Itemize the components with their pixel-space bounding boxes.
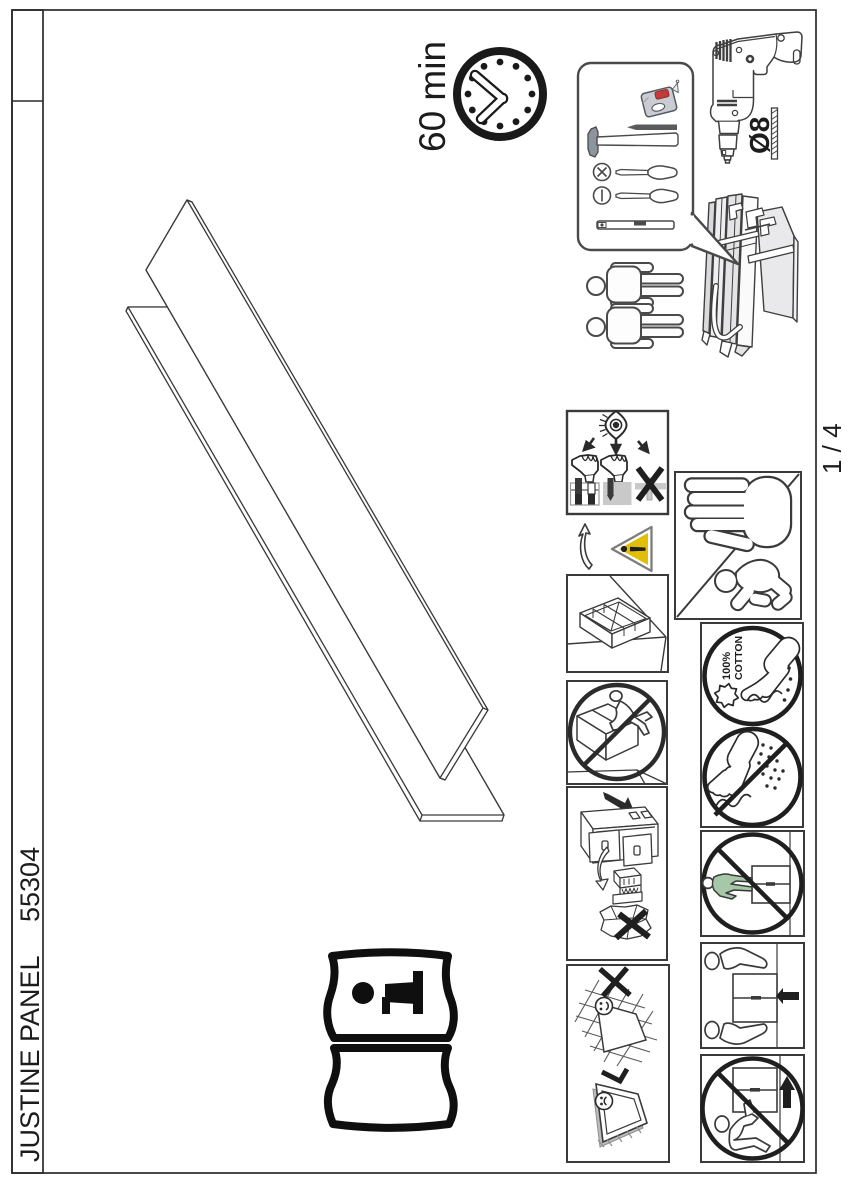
svg-text:JUSTINE PANEL: JUSTINE PANEL xyxy=(15,955,45,1162)
svg-text:Ø8: Ø8 xyxy=(744,117,775,154)
svg-text:55304: 55304 xyxy=(15,847,45,922)
svg-text:100%: 100% xyxy=(721,652,733,680)
svg-text:COTTON: COTTON xyxy=(733,636,745,680)
svg-text:1 / 4: 1 / 4 xyxy=(817,423,847,474)
svg-text:60 min: 60 min xyxy=(412,41,453,152)
